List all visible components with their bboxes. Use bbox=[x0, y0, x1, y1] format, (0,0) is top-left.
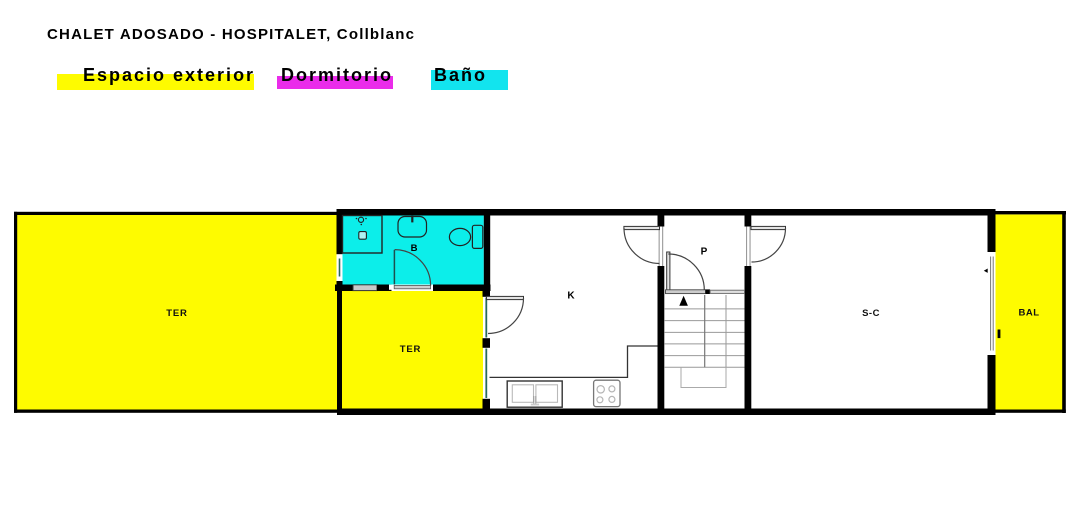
svg-text:S-C: S-C bbox=[862, 308, 880, 319]
svg-text:TER: TER bbox=[400, 344, 421, 355]
svg-text:B: B bbox=[411, 243, 418, 254]
svg-text:K: K bbox=[567, 291, 575, 302]
svg-text:BAL: BAL bbox=[1018, 308, 1039, 319]
svg-text:TER: TER bbox=[166, 308, 187, 319]
svg-text:P: P bbox=[701, 247, 708, 258]
